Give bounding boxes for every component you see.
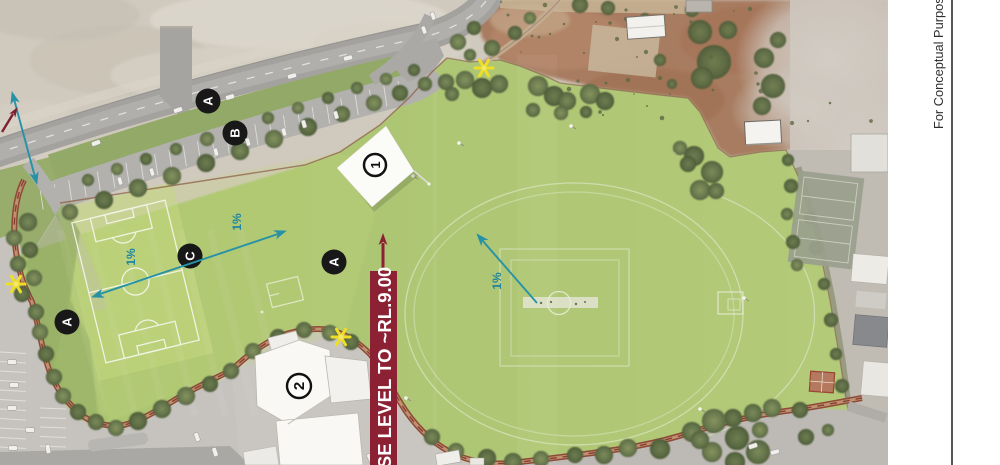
svg-text:C: C <box>183 251 198 261</box>
svg-text:A: A <box>201 96 216 106</box>
svg-text:A: A <box>60 317 75 327</box>
svg-text:For Conceptual Purposes O: For Conceptual Purposes O <box>931 0 946 129</box>
svg-text:1%: 1% <box>490 272 504 290</box>
svg-text:1%: 1% <box>124 248 138 266</box>
svg-text:RAISE LEVEL TO ~RL.9.00: RAISE LEVEL TO ~RL.9.00 <box>374 267 395 465</box>
svg-text:A: A <box>327 257 342 267</box>
svg-text:1: 1 <box>368 161 383 168</box>
svg-text:1%: 1% <box>230 213 244 231</box>
svg-text:B: B <box>228 128 243 137</box>
svg-text:2: 2 <box>291 382 308 390</box>
